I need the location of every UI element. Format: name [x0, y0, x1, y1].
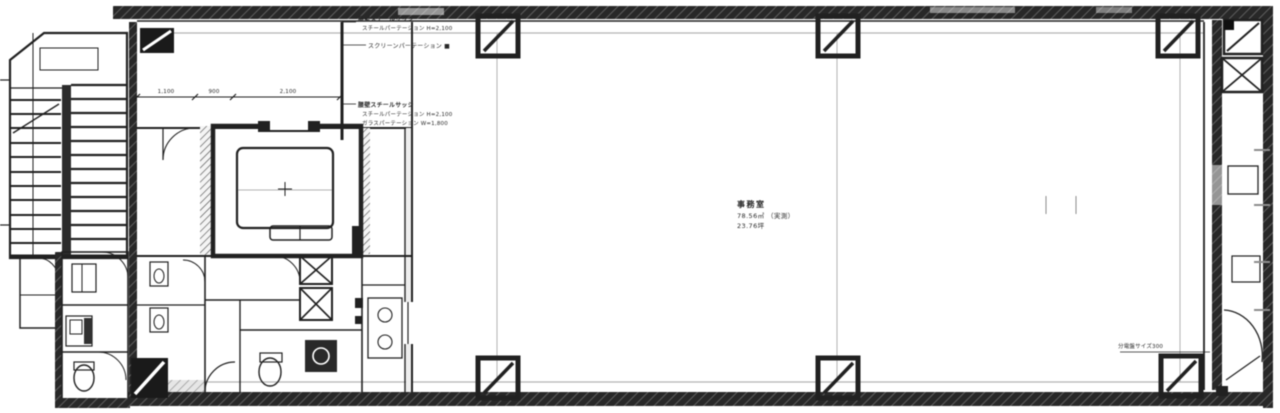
room-name: 事務室	[737, 199, 766, 209]
door-swing	[98, 352, 126, 380]
dimension-text: 1,100	[158, 89, 175, 95]
annotation-text: スチールパーテーション H=2,100	[362, 25, 453, 32]
wash-basin	[378, 308, 392, 322]
room-label: 事務室 78.56㎡ （実測） 23.76坪	[737, 199, 795, 230]
exterior-walls	[0, 6, 1273, 408]
equipment-text: 分電盤サイズ300	[1118, 342, 1163, 350]
dimension-line: 1,100 900 2,100	[134, 89, 343, 100]
office-area	[1046, 196, 1076, 214]
slop-sink-unit	[305, 340, 337, 372]
service-core: 1,100 900 2,100	[129, 22, 415, 392]
core-left-wall	[129, 22, 137, 392]
structural-columns	[131, 16, 1201, 398]
door-swing	[163, 128, 195, 160]
elevator-door-jamb	[308, 121, 320, 132]
equipment-label: 分電盤サイズ300	[1118, 342, 1210, 352]
door-swing	[183, 260, 205, 282]
floor-plan-image: 1,100 900 2,100	[0, 0, 1280, 413]
wc-fixture	[72, 264, 96, 292]
room-area: 78.56㎡ （実測）	[737, 211, 795, 220]
toilet-stall	[150, 308, 168, 332]
door-swing	[205, 362, 235, 392]
annotation-text: ガラスパーテーション W=1,800	[362, 119, 448, 127]
elevator-shaft	[200, 121, 370, 256]
dimension-text: 900	[208, 89, 219, 95]
bottom-exterior-wall	[128, 392, 1272, 406]
right-exterior-wall	[1263, 6, 1273, 408]
annotation-block-2: 腰壁スチールサッシ スチールパーテーション H=2,100 ガラスパーテーション…	[342, 101, 453, 127]
floor-plan-canvas: 1,100 900 2,100	[0, 0, 1280, 413]
annotation-text: 腰壁スチールサッシ	[357, 15, 414, 23]
annotation-text: スクリーンパーテーション ■	[368, 43, 450, 50]
annotation-text: 腰壁スチールサッシ	[357, 101, 414, 109]
stair-center-wall	[62, 85, 71, 255]
wash-basin	[378, 335, 392, 349]
toilet-area	[137, 226, 415, 392]
dimension-text: 2,100	[280, 89, 297, 95]
right-service-corridor	[1204, 20, 1270, 396]
exterior-stairwell	[10, 33, 127, 258]
annotation-text: スチールパーテーション H=2,100	[362, 111, 453, 118]
toilet-stall	[150, 262, 168, 286]
door-swing	[1224, 310, 1262, 362]
door-swing	[274, 256, 300, 282]
toilet-bowl	[74, 365, 94, 391]
room-area-tsubo: 23.76坪	[737, 222, 765, 230]
stair-treads-left	[11, 100, 61, 243]
lower-left-rooms	[20, 252, 130, 408]
elevator-door-jamb	[258, 121, 270, 132]
stair-treads-right	[71, 85, 127, 239]
